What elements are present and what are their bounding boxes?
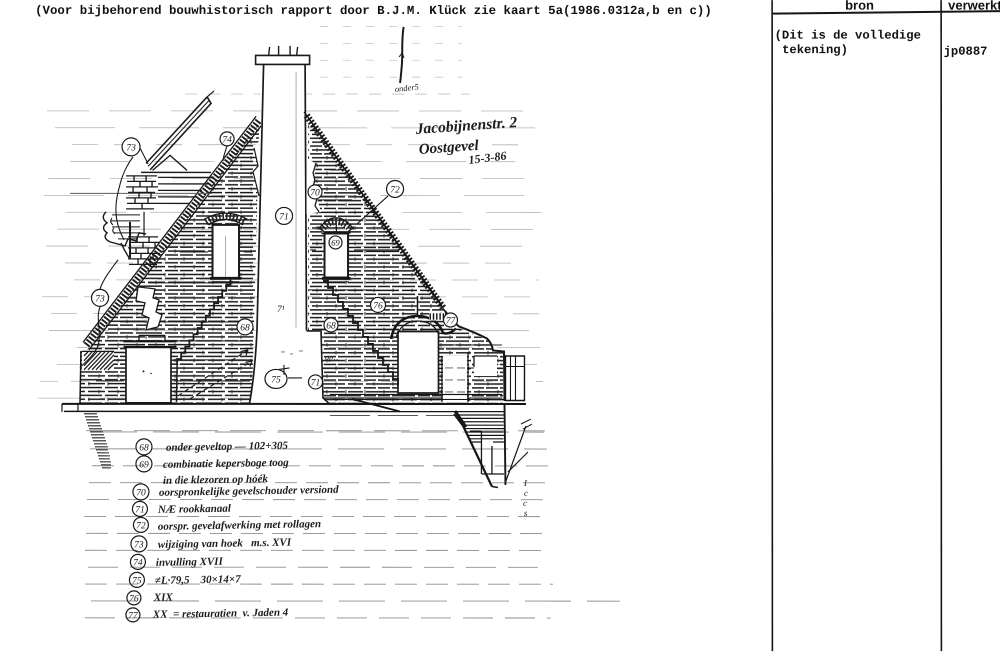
svg-text:76: 76 (373, 301, 383, 311)
svg-text:onder5: onder5 (394, 81, 419, 93)
svg-text:(Voor bijbehorend bouwhistoris: (Voor bijbehorend bouwhistorisch rapport… (35, 4, 712, 18)
svg-text:jp0887: jp0887 (944, 45, 988, 59)
svg-text:tekening): tekening) (782, 43, 848, 57)
svg-text:bron: bron (845, 0, 874, 13)
svg-text:69: 69 (139, 460, 149, 470)
svg-text:71: 71 (135, 505, 145, 515)
svg-text:73: 73 (134, 540, 144, 550)
svg-text:NÆ rookkanaal: NÆ rookkanaal (157, 503, 232, 516)
svg-text:68: 68 (139, 443, 149, 453)
svg-text:71: 71 (279, 212, 289, 222)
svg-text:≠L·79,5 30×14×7: ≠L·79,5 30×14×7 (155, 573, 241, 586)
svg-text:onder geveltop — 102+305: onder geveltop — 102+305 (166, 440, 289, 454)
svg-text:75: 75 (132, 576, 142, 586)
svg-text:70: 70 (136, 488, 146, 498)
svg-text:71: 71 (311, 378, 321, 388)
svg-text:70: 70 (310, 188, 320, 198)
svg-text:74: 74 (133, 558, 143, 568)
svg-text:c: c (524, 488, 528, 498)
svg-text:wijziging van hoek m.s. XVI: wijziging van hoek m.s. XVI (158, 537, 292, 551)
svg-text:68: 68 (240, 323, 250, 333)
svg-text:73: 73 (126, 143, 136, 153)
svg-text:oorspr. gevelafwerking met rol: oorspr. gevelafwerking met rollagen (158, 518, 321, 533)
svg-text:72: 72 (136, 521, 146, 531)
svg-text:77: 77 (446, 316, 457, 326)
svg-text:c: c (523, 498, 527, 508)
svg-text:verwerkt: verwerkt (948, 0, 1000, 13)
svg-text:XX = restauratien v. Jaden 4: XX = restauratien v. Jaden 4 (152, 607, 289, 621)
svg-text:76: 76 (129, 594, 139, 604)
svg-text:69: 69 (331, 237, 340, 247)
svg-text:75: 75 (271, 375, 281, 385)
svg-text:Jacobijnenstr. 2: Jacobijnenstr. 2 (414, 114, 518, 138)
svg-text:s: s (524, 508, 528, 518)
svg-text:77: 77 (128, 611, 139, 621)
svg-text:XIX: XIX (153, 592, 174, 604)
svg-text:op‥: op‥ (325, 353, 338, 362)
svg-text:73: 73 (95, 294, 105, 304)
svg-text:72: 72 (390, 185, 400, 195)
svg-text:68: 68 (326, 321, 336, 331)
svg-text:(Dit is de volledige: (Dit is de volledige (775, 29, 921, 43)
svg-text:oorspronkelijke gevelschouder: oorspronkelijke gevelschouder versiond (159, 484, 339, 499)
svg-text:7¹: 7¹ (277, 305, 285, 315)
svg-text:invulling XVII: invulling XVII (156, 556, 224, 569)
svg-text:74: 74 (222, 135, 232, 145)
svg-text:combinatie kepersboge toog: combinatie kepersboge toog (163, 457, 290, 471)
